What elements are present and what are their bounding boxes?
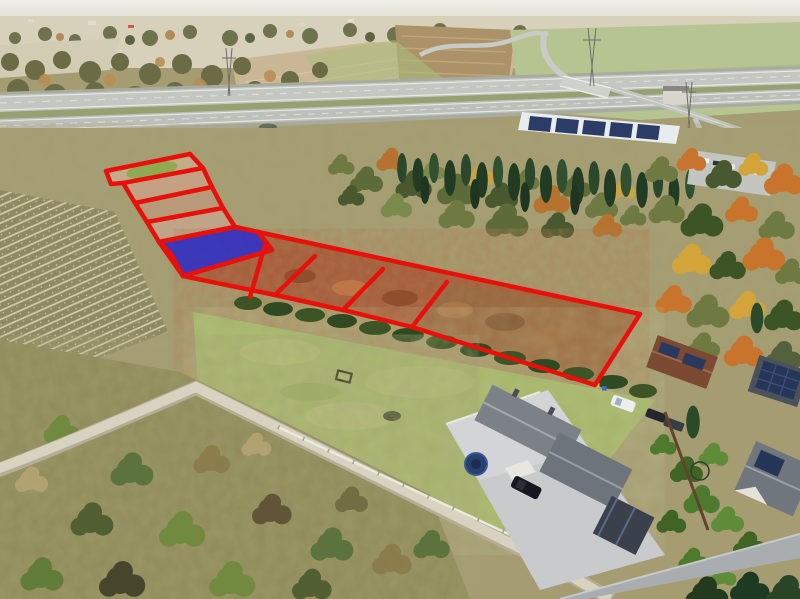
lawn-mark	[383, 411, 401, 421]
solar-house-lower	[734, 441, 800, 516]
toy	[602, 386, 607, 391]
aerial-photo-canvas	[0, 0, 800, 599]
aerial-photo	[0, 0, 800, 599]
